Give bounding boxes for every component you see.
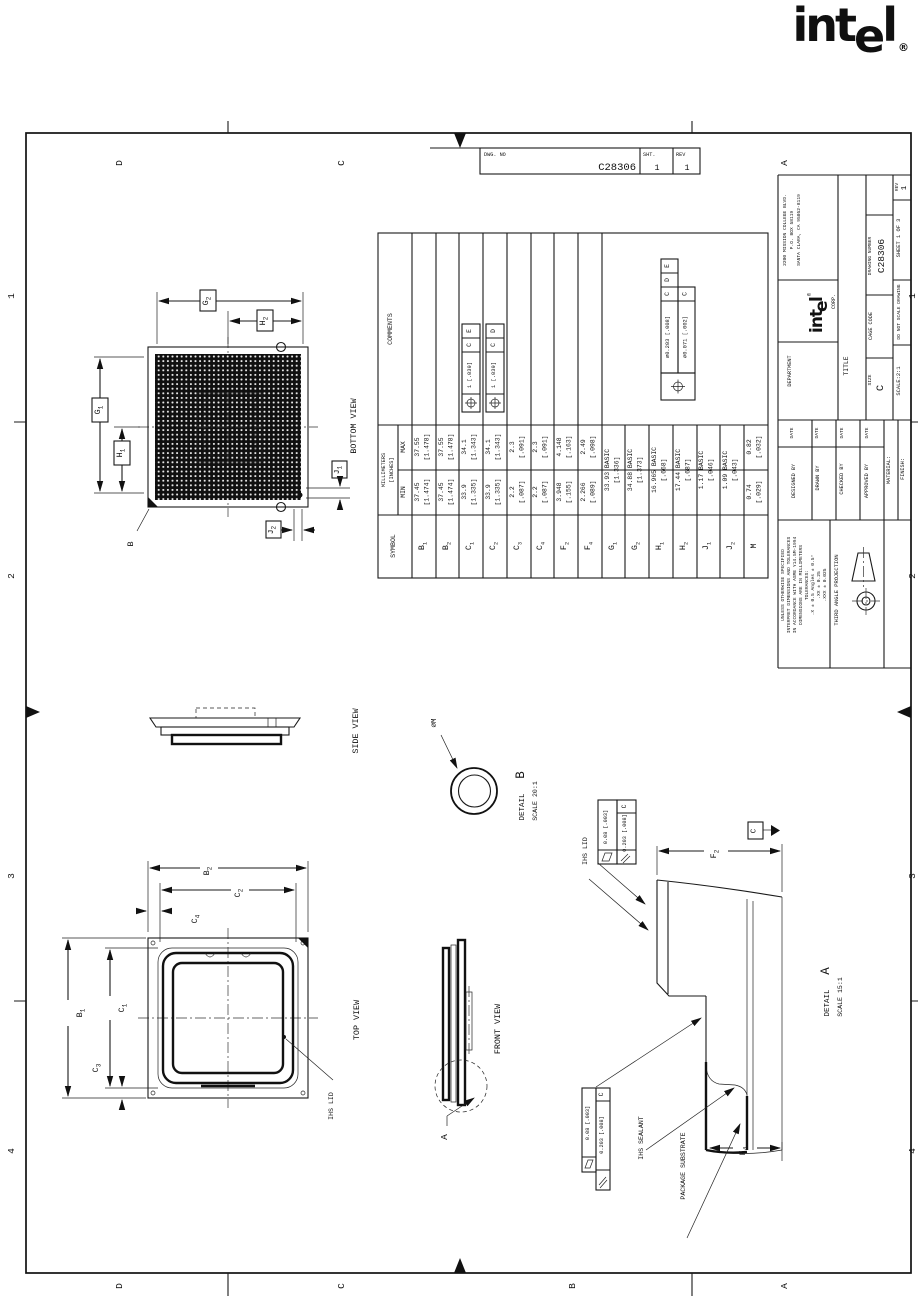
material-label: MATERIAL: [886,456,892,484]
dwg-number: C28306 [598,162,636,174]
svg-text:0.82: 0.82 [746,439,753,455]
svg-text:[.163]: [.163] [566,435,573,458]
col-symbol: SYMBOL [390,534,397,558]
bottom-view-label: BOTTOM VIEW [349,397,359,453]
svg-text:[.046]: [.046] [708,458,715,481]
detail-a-scale: SCALE 15:1 [837,977,844,1017]
datum-triangle-icon [771,825,780,836]
side-view-label: SIDE VIEW [351,707,361,753]
svg-text:16.965 BASIC: 16.965 BASIC [651,447,658,493]
center-mark-top-icon [454,133,466,148]
zone-number: 2 [6,573,17,579]
dwg-no-label: DWG. NO [484,152,506,158]
sym: G1 [607,542,619,550]
svg-text:[.687]: [.687] [685,458,692,481]
svg-text:2.49: 2.49 [580,439,587,455]
svg-text:[1.343]: [1.343] [495,434,502,461]
svg-text:[.091]: [.091] [542,435,549,458]
svg-text:[1.373]: [1.373] [637,457,644,484]
svg-text:.X ± 0.5 Angles ± 0.5°: .X ± 0.5 Angles ± 0.5° [810,554,816,615]
ihs-lid-callout: IHS LID [328,1092,335,1120]
svg-text:33.9: 33.9 [485,484,492,500]
svg-text:∅0.203 [.008]: ∅0.203 [.008] [665,316,671,358]
registered-mark-icon: ® [806,293,813,296]
drawing-number: C28306 [876,239,887,274]
svg-text:[1.474]: [1.474] [424,479,431,506]
svg-text:[1.335]: [1.335] [471,479,478,506]
svg-text:33.93 BASIC: 33.93 BASIC [604,449,611,491]
detail-a-letter: A [819,967,833,975]
drawn-by-label: DRAWN BY [815,465,821,491]
svg-text:[.087]: [.087] [519,480,526,503]
date-label: DATE [814,427,820,438]
side-view: SIDE VIEW [150,707,361,753]
svg-text:[.043]: [.043] [732,458,739,481]
dim-c1: C1 [117,1003,129,1012]
detail-a: F2 C F4 0.08 [.003] 0.203 [.008] C [582,800,844,1238]
drawing-page: intel® D C A D C B A 1 2 [0,0,919,1313]
svg-text:[1.474]: [1.474] [448,479,455,506]
zone-number: 3 [907,873,918,879]
svg-text:E: E [664,264,671,268]
sym: F4 [583,542,595,550]
sym: B2 [441,542,453,550]
fcf-c1: 1 [.039] C E [462,324,480,412]
dim-h2: H2 [258,316,270,325]
svg-text:[1.478]: [1.478] [448,434,455,461]
top-view: B2 C2 C4 B1 C1 C3 [62,861,362,1120]
svg-text:C: C [490,343,497,347]
svg-text:[.668]: [.668] [661,458,668,481]
svg-text:[.032]: [.032] [756,435,763,458]
bottom-view: G2 H2 G1 H1 J1 [92,290,359,547]
svg-text:2.3: 2.3 [509,441,516,453]
zone-number: 2 [907,573,918,579]
svg-text:1 [.039]: 1 [.039] [491,362,497,388]
rev-label: REV [894,183,900,192]
sym: M [749,543,759,548]
svg-text:IN ACCORDANCE WITH ASME Y14.5M: IN ACCORDANCE WITH ASME Y14.5M-1994 [792,537,798,634]
zone-number: 1 [907,293,918,299]
detail-b: ∅M DETAIL B SCALE 20:1 [431,718,539,821]
svg-text:33.9: 33.9 [461,484,468,500]
svg-text:UNLESS OTHERWISE SPECIFIED: UNLESS OTHERWISE SPECIFIED [780,549,786,621]
checked-by-label: CHECKED BY [839,463,845,495]
svg-text:C: C [682,292,689,296]
sym: H2 [678,542,690,550]
dim-c2: C2 [233,888,245,897]
dim-b2: B2 [202,866,214,875]
svg-text:34.88 BASIC: 34.88 BASIC [627,449,634,491]
dim-dia-m: ∅M [431,718,439,728]
sym: B1 [417,542,429,550]
sheet-label: SHEET 1 OF 3 [896,219,902,258]
svg-text:37.45: 37.45 [414,482,421,501]
svg-text:D: D [664,278,671,282]
svg-text:C: C [664,292,671,296]
fcf-c2: 1 [.039] C D [486,324,504,412]
svg-text:17.44 BASIC: 17.44 BASIC [675,449,682,491]
scale-label: SCALE:2:1 [896,366,902,395]
pin1-corner-mark [298,938,308,948]
detail-b-letter: B [514,771,528,779]
svg-text:TOLERANCES:: TOLERANCES: [804,570,810,600]
svg-text:1 [.039]: 1 [.039] [467,362,473,388]
fcf-datum: C [621,804,628,808]
svg-text:DIMENSIONS ARE IN MILLIMETERS: DIMENSIONS ARE IN MILLIMETERS [798,545,804,625]
dim-c4: C4 [190,914,202,923]
dim-g2: G2 [201,296,213,305]
detail-a-word: DETAIL [824,989,832,1017]
svg-text:[.029]: [.029] [756,480,763,503]
ihs-lid-callout: IHS LID [582,837,589,865]
svg-text:2.2: 2.2 [509,486,516,498]
approved-by-label: APPROVED BY [864,463,870,498]
drawing-number-label: DRAWING NUMBER [867,236,873,275]
top-view-label: TOP VIEW [352,999,362,1040]
fold-print-strip: DWG. NO C28306 SHT. 1 REV 1 [430,148,700,174]
svg-text:1.17 BASIC: 1.17 BASIC [698,451,705,490]
svg-text:D: D [490,329,497,333]
svg-text:34.1: 34.1 [461,439,468,455]
svg-text:37.55: 37.55 [438,437,445,456]
dim-j1: J1 [334,466,344,475]
parallelism-tolerance: 0.203 [.008] [622,814,628,851]
svg-text:[.091]: [.091] [519,435,526,458]
svg-text:[.098]: [.098] [590,435,597,458]
svg-text:37.55: 37.55 [414,437,421,456]
svg-text:[.155]: [.155] [566,480,573,503]
sht-label: SHT. [643,152,655,158]
col-comments: COMMENTS [387,313,394,345]
pin-a1-marker [298,493,303,498]
rev-value: 1 [901,185,909,190]
col-min: MIN [400,486,407,498]
package-substrate-callout: PACKAGE SUBSTRATE [680,1132,687,1199]
svg-text:2.266: 2.266 [580,482,587,501]
svg-text:l: l [807,296,827,302]
datum-c-label: C [751,828,759,833]
svg-text:INTERPRET DIMENSIONS AND TOLER: INTERPRET DIMENSIONS AND TOLERANCES [786,537,792,634]
front-view-label: FRONT VIEW [493,1003,503,1054]
corp-label: CORP. [831,294,837,309]
center-mark-bottom-icon [454,1258,466,1273]
sheet-border: D C A D C B A 1 2 3 4 1 2 3 4 [6,121,918,1296]
dim-g1: G1 [93,405,105,414]
department-label: DEPARTMENT [787,355,793,386]
date-label: DATE [789,427,795,438]
fcf-datum: C [598,1092,605,1096]
col-units: [INCHES] [389,458,395,483]
title-label: TITLE [843,356,850,375]
svg-text:[1.343]: [1.343] [471,434,478,461]
zone-letter: D [114,160,125,166]
datum-b-label: B [126,541,136,546]
svg-text:37.45: 37.45 [438,482,445,501]
size-label: SIZE [867,374,873,385]
dim-f4: F4 [738,1146,750,1155]
zone-letter: C [336,1283,347,1289]
rev-value: 1 [684,163,689,173]
svg-text:[.087]: [.087] [542,480,549,503]
drawing-sheet: D C A D C B A 1 2 3 4 1 2 3 4 DWG. NO C2… [0,0,919,1313]
sym: J1 [701,542,713,550]
zone-letter: B [567,1283,578,1289]
intel-logo-small: int e l ® CORP. [806,293,837,333]
zone-letter: A [779,1283,790,1289]
center-mark-left-icon [26,706,40,718]
fcf-composite: ∅0.203 [.008] C D E ∅0.071 [.002] C [661,259,695,400]
sym: C4 [535,542,547,550]
dim-h1: H1 [115,448,127,457]
date-label: DATE [864,427,870,438]
svg-text:2.2: 2.2 [532,486,539,498]
svg-text:3.948: 3.948 [556,482,563,501]
cage-code-label: CAGE CODE [868,312,874,340]
designed-by-label: DESIGNED BY [791,463,797,498]
sym: C1 [464,542,476,550]
parallelism-icon [621,854,630,863]
col-units: MILLIMETERS [381,453,387,487]
svg-text:[.089]: [.089] [590,480,597,503]
col-max: MAX [400,441,407,453]
rev-label: REV [676,152,686,158]
address-line: P.O. BOX 58119 [789,210,795,249]
svg-text:34.1: 34.1 [485,439,492,455]
svg-text:0.74: 0.74 [746,484,753,500]
svg-text:[1.478]: [1.478] [424,434,431,461]
sym: F2 [559,542,571,550]
tolerance-notes: UNLESS OTHERWISE SPECIFIED INTERPRET DIM… [780,537,828,634]
dimension-table: COMMENTS MILLIMETERS [INCHES] MAX MIN SY… [378,233,768,578]
sym: C3 [512,542,524,550]
date-label: DATE [839,427,845,438]
flatness-tolerance: 0.08 [.003] [585,1106,591,1140]
center-mark-right-icon [897,706,911,718]
ihs-sealant-callout: IHS SEALANT [638,1116,645,1160]
dim-c3: C3 [91,1063,103,1072]
zone-letter: A [779,160,790,166]
zone-letter: D [114,1283,125,1289]
parallelism-icon [599,1177,607,1188]
finish-label: FINISH: [900,458,906,480]
sym: C2 [488,542,500,550]
svg-text:[1.336]: [1.336] [614,457,621,484]
dim-f2: F2 [709,849,721,858]
svg-text:4.148: 4.148 [556,437,563,456]
projection-label: THIRD ANGLE PROJECTION [834,554,840,625]
title-block: 2200 MISSION COLLEGE BLVD. P.O. BOX 5811… [778,175,911,668]
svg-text:.XXX ± 0.025: .XXX ± 0.025 [822,568,828,601]
flatness-icon [585,1160,593,1168]
fcf-frame-upper: 0.08 [.003] 0.203 [.008] C [598,800,645,904]
address-line: SANTA CLARA, CA 95052-8119 [796,194,802,266]
zone-number: 4 [6,1148,17,1154]
detail-b-word: DETAIL [519,793,527,821]
sht-value: 1 [654,163,659,173]
address-line: 2200 MISSION COLLEGE BLVD. [782,194,788,266]
detail-b-scale: SCALE 20:1 [532,781,539,821]
do-not-scale-label: DO NOT SCALE DRAWING [896,284,902,339]
svg-text:C: C [466,343,473,347]
svg-text:[1.335]: [1.335] [495,479,502,506]
svg-text:.XX ± 0.25: .XX ± 0.25 [816,571,822,599]
parallelism-tolerance: 0.203 [.008] [599,1116,605,1153]
dim-b1: B1 [75,1008,87,1017]
flatness-icon [602,853,612,861]
sym: G2 [630,542,642,550]
zone-number: 3 [6,873,17,879]
front-view: A FRONT VIEW [435,940,503,1140]
zone-number: 1 [6,293,17,299]
flatness-tolerance: 0.08 [.003] [603,810,609,844]
sym: H1 [654,542,666,550]
svg-text:1.09 BASIC: 1.09 BASIC [722,451,729,490]
svg-text:2.3: 2.3 [532,441,539,453]
dim-j2: J2 [268,526,278,535]
third-angle-projection: THIRD ANGLE PROJECTION [834,547,880,626]
zone-number: 4 [907,1148,918,1154]
size-value: C [875,385,887,391]
zone-letter: C [336,160,347,166]
sym: J2 [725,542,737,550]
svg-text:∅0.071 [.002]: ∅0.071 [.002] [683,316,689,358]
detail-a-ref-label: A [439,1134,450,1140]
svg-text:E: E [466,329,473,333]
